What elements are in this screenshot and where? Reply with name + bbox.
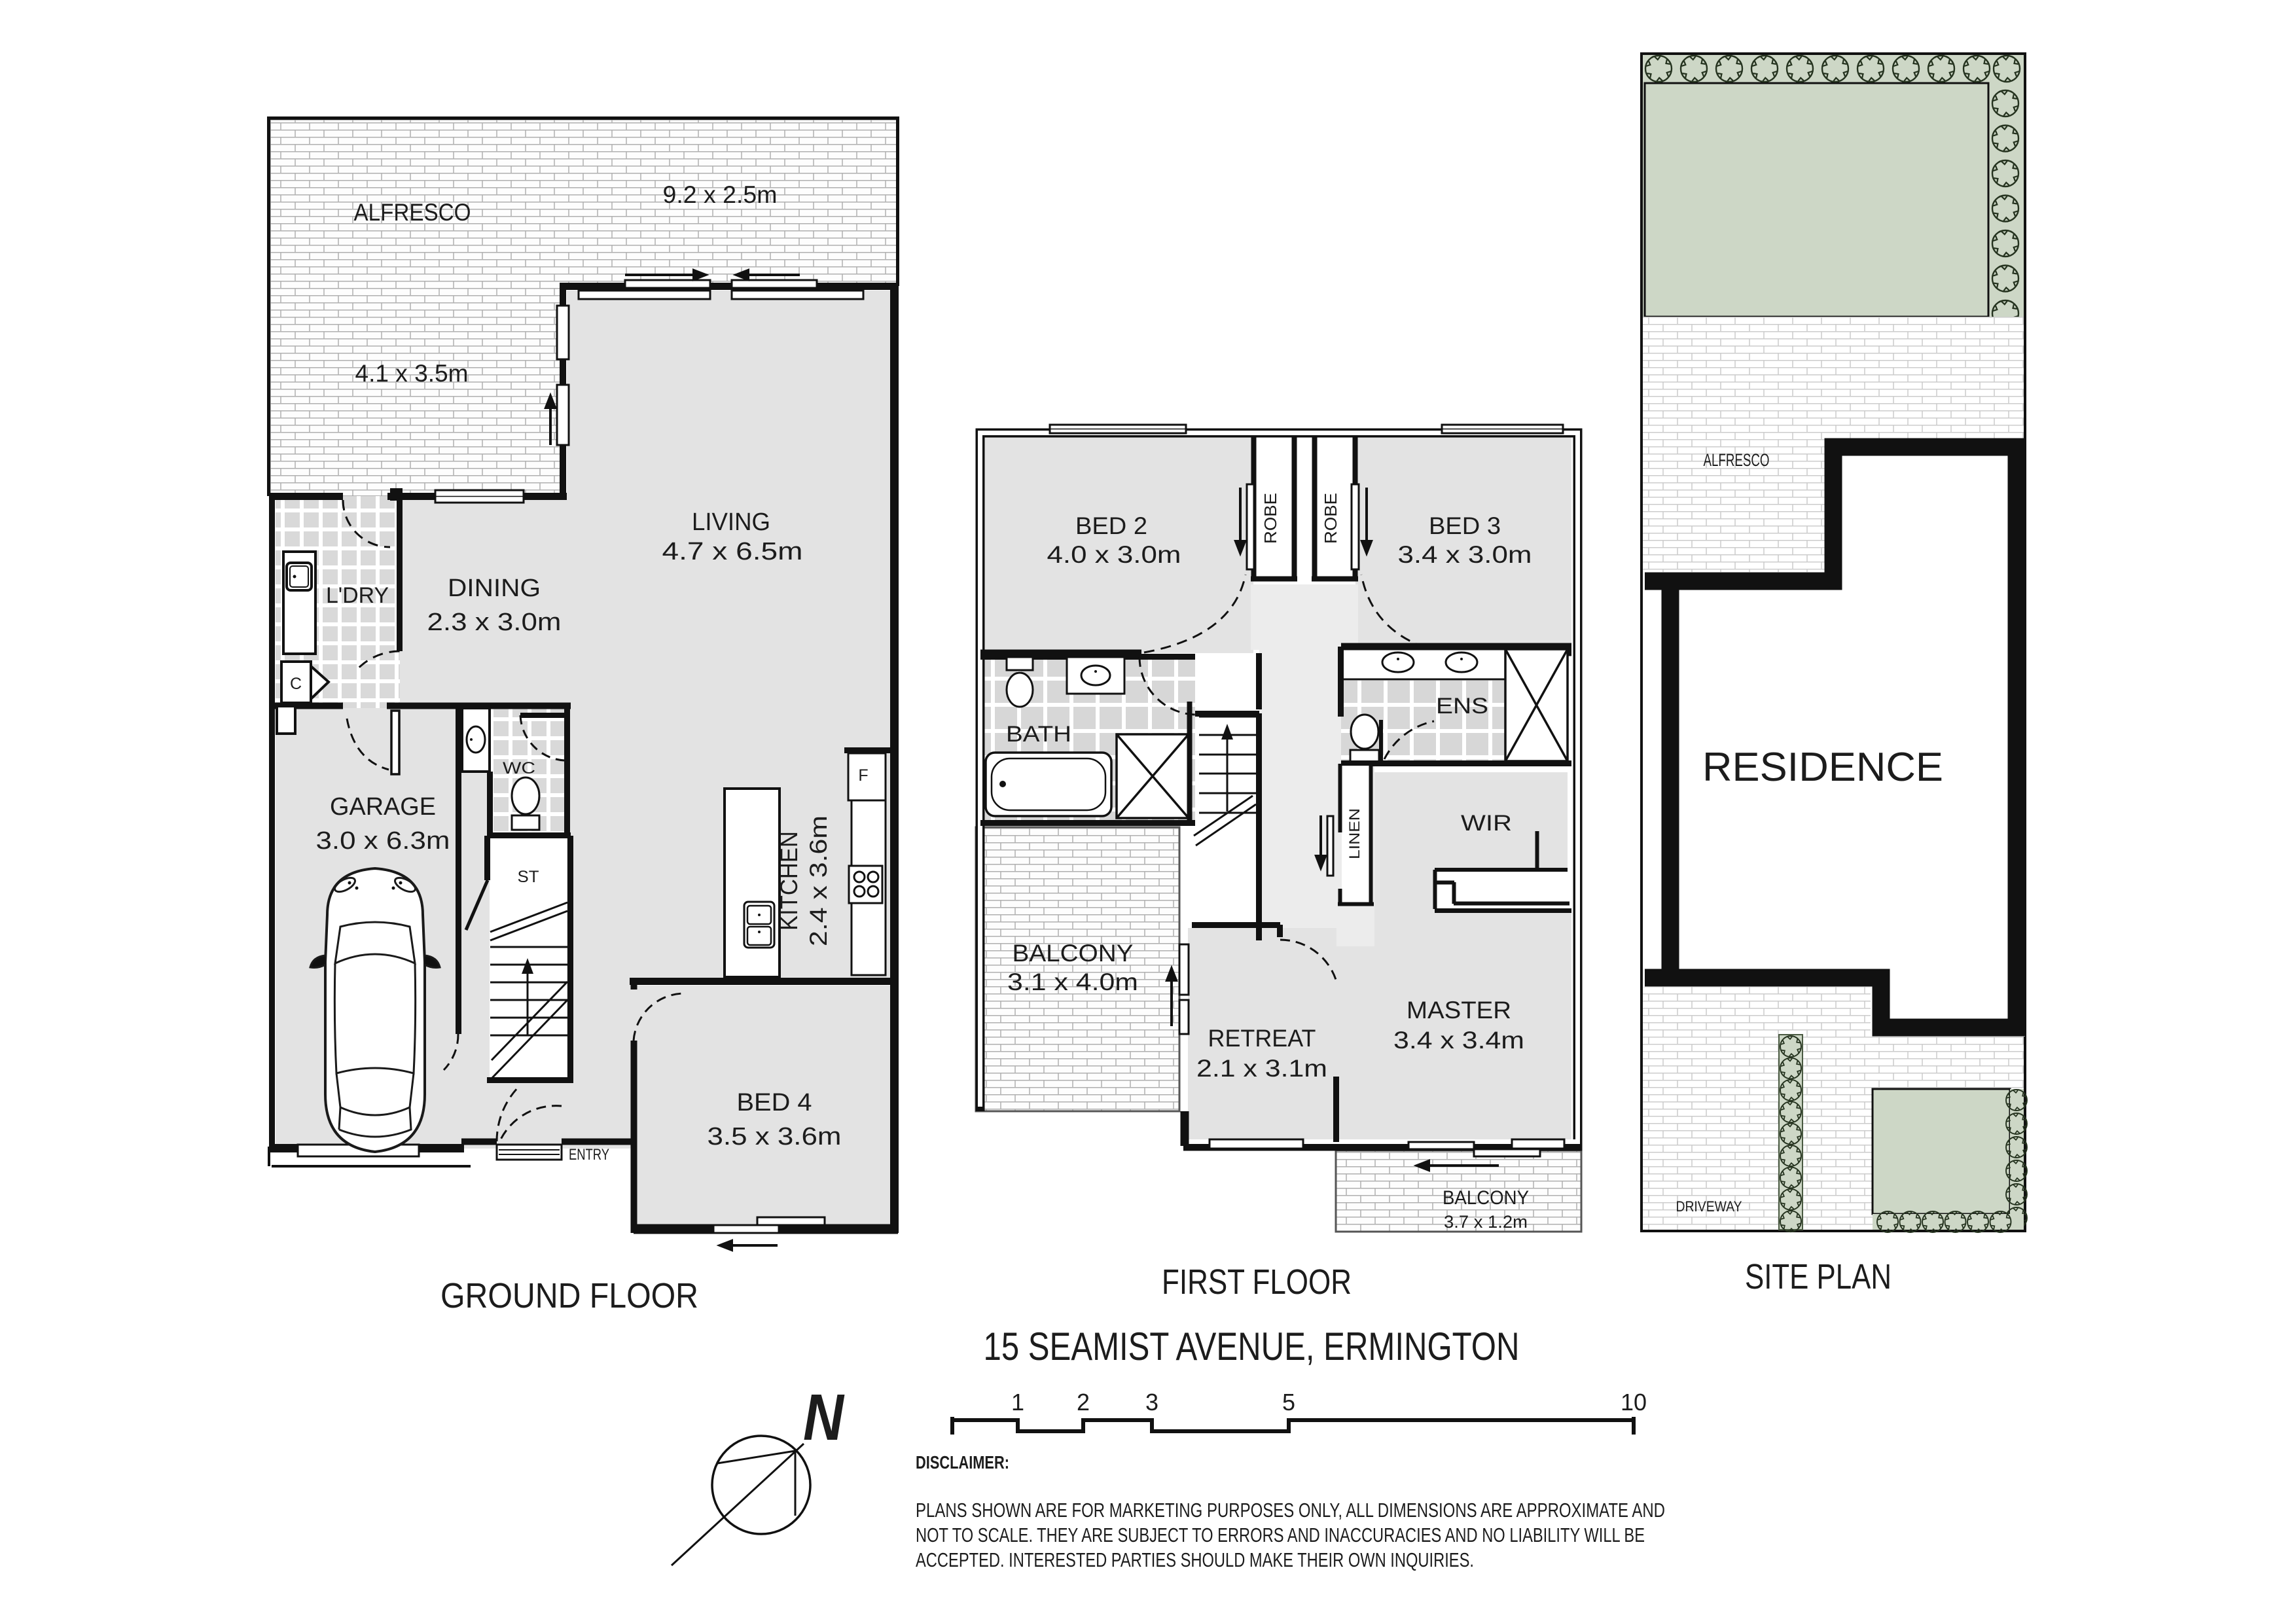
svg-text:WIR: WIR	[1461, 811, 1512, 836]
svg-text:4.0 x 3.0m: 4.0 x 3.0m	[1047, 541, 1181, 568]
svg-text:ENTRY: ENTRY	[569, 1146, 609, 1164]
svg-text:KITCHEN: KITCHEN	[776, 831, 802, 931]
svg-text:DINING: DINING	[448, 575, 541, 602]
svg-text:FIRST FLOOR: FIRST FLOOR	[1162, 1262, 1352, 1302]
svg-text:DISCLAIMER:: DISCLAIMER:	[916, 1452, 1009, 1472]
svg-text:BALCONY: BALCONY	[1443, 1187, 1529, 1209]
svg-text:LINEN: LINEN	[1346, 808, 1363, 859]
svg-text:15 SEAMIST AVENUE, ERMINGTON: 15 SEAMIST AVENUE, ERMINGTON	[984, 1325, 1520, 1368]
svg-text:3.4 x 3.0m: 3.4 x 3.0m	[1398, 541, 1532, 568]
svg-text:ENS: ENS	[1436, 694, 1488, 719]
svg-text:GROUND FLOOR: GROUND FLOOR	[440, 1276, 698, 1315]
svg-text:9.2 x 2.5m: 9.2 x 2.5m	[663, 181, 778, 208]
svg-text:BALCONY: BALCONY	[1013, 940, 1134, 967]
svg-text:4.7 x 6.5m: 4.7 x 6.5m	[662, 538, 803, 565]
svg-text:3.0 x 6.3m: 3.0 x 6.3m	[316, 827, 450, 855]
svg-text:GARAGE: GARAGE	[330, 793, 436, 821]
svg-text:N: N	[803, 1381, 845, 1454]
svg-text:3.7 x 1.2m: 3.7 x 1.2m	[1444, 1212, 1528, 1232]
svg-text:RETREAT: RETREAT	[1208, 1025, 1316, 1052]
svg-text:BED 4: BED 4	[737, 1089, 812, 1116]
svg-text:C: C	[290, 675, 302, 693]
svg-text:ALFRESCO: ALFRESCO	[1704, 450, 1770, 470]
svg-text:F: F	[858, 766, 868, 785]
svg-text:ST: ST	[518, 868, 539, 886]
svg-text:LIVING: LIVING	[692, 508, 770, 536]
svg-text:3.1 x 4.0m: 3.1 x 4.0m	[1007, 969, 1138, 995]
svg-text:5: 5	[1282, 1389, 1295, 1416]
svg-text:BED 2: BED 2	[1075, 512, 1147, 539]
svg-text:2.1 x 3.1m: 2.1 x 3.1m	[1196, 1055, 1327, 1082]
svg-text:3: 3	[1145, 1389, 1158, 1416]
svg-text:RESIDENCE: RESIDENCE	[1702, 745, 1943, 790]
svg-text:2.4 x 3.6m: 2.4 x 3.6m	[805, 815, 832, 946]
svg-text:3.4 x 3.4m: 3.4 x 3.4m	[1393, 1027, 1524, 1054]
svg-text:MASTER: MASTER	[1407, 997, 1511, 1024]
svg-text:ALFRESCO: ALFRESCO	[354, 199, 471, 226]
svg-text:BED 3: BED 3	[1429, 512, 1501, 539]
svg-text:ACCEPTED. INTERESTED PARTIES S: ACCEPTED. INTERESTED PARTIES SHOULD MAKE…	[916, 1548, 1474, 1571]
svg-text:BATH: BATH	[1006, 722, 1071, 747]
svg-text:ROBE: ROBE	[1261, 493, 1280, 544]
svg-text:10: 10	[1621, 1389, 1647, 1416]
svg-text:PLANS SHOWN ARE FOR MARKETING: PLANS SHOWN ARE FOR MARKETING PURPOSES O…	[916, 1499, 1665, 1522]
svg-text:DRIVEWAY: DRIVEWAY	[1676, 1198, 1742, 1215]
svg-text:3.5 x 3.6m: 3.5 x 3.6m	[708, 1123, 842, 1150]
svg-text:ROBE: ROBE	[1321, 493, 1340, 544]
svg-text:L'DRY: L'DRY	[326, 583, 389, 608]
svg-text:2: 2	[1077, 1389, 1090, 1416]
svg-text:SITE PLAN: SITE PLAN	[1745, 1257, 1892, 1296]
svg-text:1: 1	[1011, 1389, 1024, 1416]
svg-text:NOT TO SCALE. THEY ARE SUBJECT: NOT TO SCALE. THEY ARE SUBJECT TO ERRORS…	[916, 1524, 1645, 1546]
svg-text:4.1 x 3.5m: 4.1 x 3.5m	[355, 360, 469, 387]
svg-text:2.3 x 3.0m: 2.3 x 3.0m	[427, 609, 562, 636]
svg-text:WC: WC	[503, 759, 535, 777]
